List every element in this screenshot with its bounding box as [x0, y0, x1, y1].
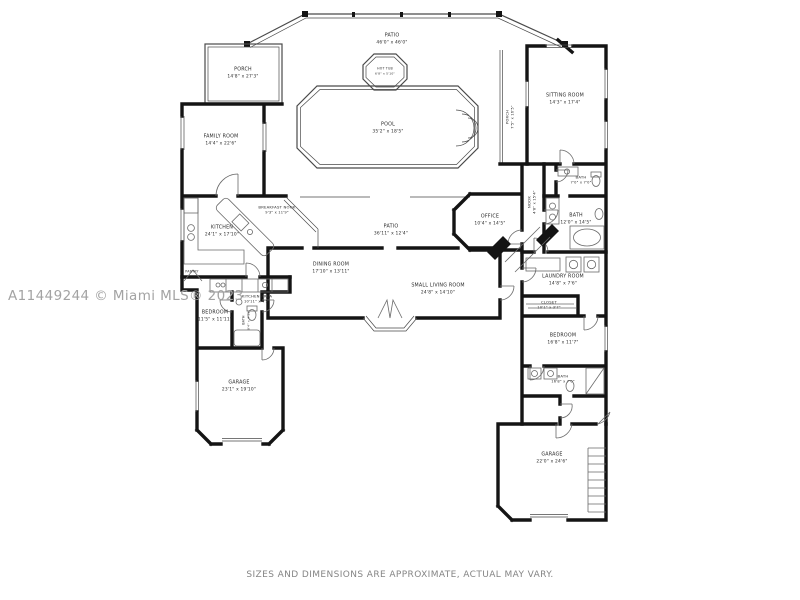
- bay-window: [363, 316, 417, 331]
- french-door-flaps: [378, 300, 402, 318]
- room-label-office: OFFICE 10'4" x 14'5": [474, 214, 505, 227]
- window: [263, 122, 266, 152]
- room-label-kitchen: KITCHEN 24'1" x 17'10": [205, 225, 239, 238]
- door-arc: [584, 316, 598, 330]
- walls-center-block: [268, 248, 500, 318]
- disclaimer-text: SIZES AND DIMENSIONS ARE APPROXIMATE, AC…: [0, 570, 800, 580]
- room-label-patio-center: PATIO 36'11" x 12'4": [374, 224, 408, 237]
- stove-burner-icon: [216, 283, 220, 287]
- floor-plan-page: PATIO 46'0" x 46'0" HOT TUB 6'8" x 5'10"…: [0, 0, 800, 600]
- washer-drum: [569, 260, 577, 268]
- room-label-small-living-room: SMALL LIVING ROOM 24'8" x 14'10": [411, 283, 464, 296]
- room-label-bath-small: BATH 7'0" x 7'0": [570, 175, 591, 186]
- sink-icon: [550, 203, 556, 209]
- shower-door-line: [586, 368, 604, 394]
- sink-icon: [532, 371, 538, 377]
- door-arc: [508, 230, 522, 244]
- sink-icon: [550, 214, 556, 220]
- window: [526, 80, 529, 108]
- door-arc: [262, 348, 274, 360]
- garage-door-right: [530, 515, 568, 518]
- window: [196, 380, 199, 412]
- room-label-pool: POOL 35'2" x 18'5": [372, 122, 403, 135]
- room-label-porch-left: PORCH 14'8" x 27'3": [227, 67, 258, 80]
- room-label-bath-right: BATH 16'8" x 7'0": [551, 374, 575, 385]
- room-label-dining-room: DINING ROOM 17'10" x 13'11": [312, 262, 349, 275]
- bathtub-icon: [234, 330, 260, 346]
- dryer-drum: [587, 260, 595, 268]
- mls-watermark: A11449244 © Miami MLS® 2023: [8, 288, 244, 304]
- door-arc: [246, 263, 260, 277]
- room-label-porch-right: PORCH 7'5" x 16'5": [505, 105, 516, 129]
- washer-icon: [566, 257, 581, 272]
- room-label-sitting-room: SITTING ROOM 14'3" x 17'4": [546, 93, 584, 106]
- room-label-bath-left: BATH 8'4" x 4'11": [242, 310, 251, 330]
- patio-post-tick: [448, 12, 451, 17]
- dryer-icon: [584, 257, 599, 272]
- toilet-tank: [591, 172, 601, 177]
- room-label-closet: CLOSET 10'1" x 3'7": [537, 300, 561, 311]
- door-arc: [556, 424, 572, 438]
- room-label-kitchen-area: KITCHEN AREA 10'11" x 4'5": [242, 294, 272, 305]
- room-label-nook: NOOK 4'8" x 15'4": [527, 190, 538, 214]
- door-arc: [560, 150, 574, 164]
- room-label-breakfast-nook: BREAKFAST NOOK 9'3" x 11'9": [258, 205, 295, 216]
- walls-left-wing: [182, 104, 290, 277]
- room-label-garage-left: GARAGE 23'1" x 19'10": [222, 380, 256, 393]
- exterior-door-flap: [598, 412, 610, 424]
- room-label-hot-tub: HOT TUB 6'8" x 5'10": [375, 67, 395, 76]
- bathtub-icon: [574, 229, 601, 246]
- stove-burner-icon: [221, 283, 225, 287]
- laundry-counter: [526, 258, 560, 271]
- door-arc: [216, 174, 238, 196]
- patio-post-tick: [352, 12, 355, 17]
- door-arc: [500, 286, 514, 300]
- room-label-garage-right: GARAGE 22'0" x 24'6": [536, 452, 567, 465]
- island-sink-icon: [246, 228, 253, 235]
- patio-post: [496, 11, 502, 17]
- kitchen-sink-icon: [188, 234, 195, 241]
- door-arc: [522, 268, 536, 282]
- room-label-bedroom-right: BEDROOM 16'8" x 11'7": [547, 333, 578, 346]
- room-label-bath-master: BATH 12'0" x 14'5": [560, 213, 591, 226]
- kitchen-sink-icon: [188, 225, 195, 232]
- door-arc: [560, 404, 572, 418]
- patio-post-tick: [400, 12, 403, 17]
- room-label-laundry-room: LAUNDRY ROOM 14'8" x 7'6": [542, 274, 584, 287]
- room-label-patio-top: PATIO 46'0" x 46'0": [376, 33, 407, 46]
- room-label-pantry: PANTRY: [185, 270, 198, 275]
- fridge-icon: [184, 198, 198, 213]
- room-label-family-room: FAMILY ROOM 14'4" x 22'6": [204, 134, 239, 147]
- room-label-bedroom-left: BEDROOM 11'5" x 11'11": [198, 310, 232, 323]
- patio-post: [302, 11, 308, 17]
- garage-door-left: [222, 439, 262, 442]
- bathtub-surround: [570, 226, 604, 249]
- stairs-icon: [588, 448, 606, 512]
- toilet-icon: [595, 209, 603, 220]
